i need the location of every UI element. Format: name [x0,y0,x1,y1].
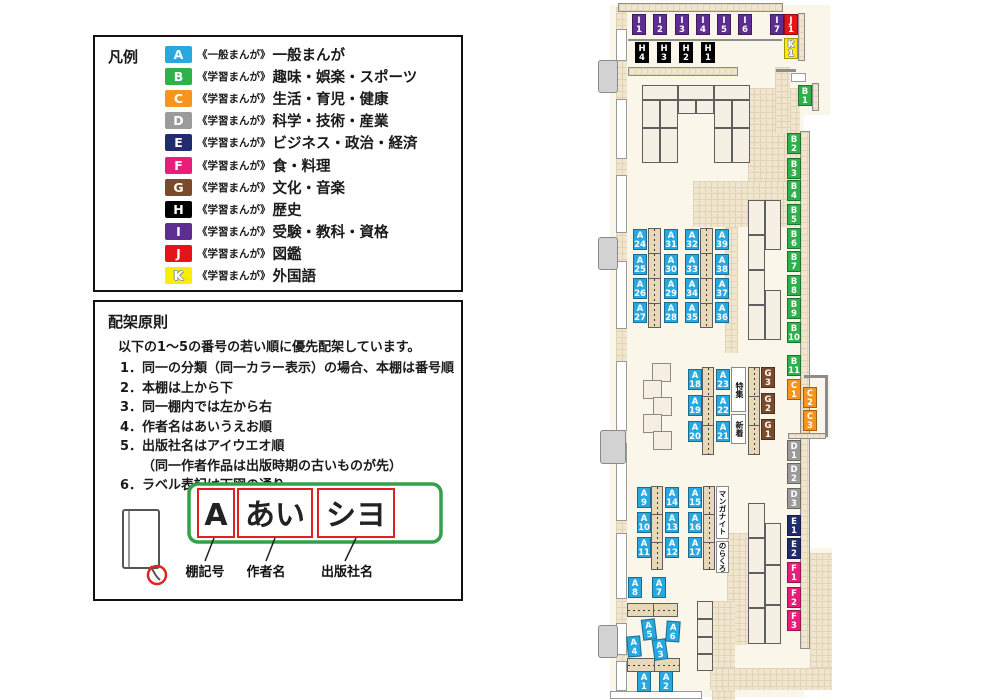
shelf-label-C1: C1 [787,379,801,400]
shelf-cell [697,601,713,619]
legend-title: 凡例 [108,46,138,67]
shelf-label-B11: B11 [787,355,801,376]
shelf-label-I4: I4 [696,14,710,35]
wall-segment [616,261,627,329]
floor-map: 特集 新着 マンガナイト のらくろ A1A2A3A4A5A6A7A8A9A10A… [598,3,834,700]
shelf-label-B8: B8 [787,275,801,296]
shelf-strip [651,486,663,570]
area-label-featured: 特集 [731,367,746,412]
shelf-label-A33: A33 [685,254,699,275]
shelf-strip [748,367,760,455]
legend-type: 《学習まんが》 [197,268,271,283]
shelf-strip [700,228,713,328]
legend-panel: 凡例 A《一般まんが》一般まんがB《学習まんが》趣味・娯楽・スポーツC《学習まん… [93,35,463,292]
shelf-label-A29: A29 [664,278,678,299]
shelf-label-A37: A37 [715,278,729,299]
principles-rules: 1．同一の分類（同一カラー表示）の場合、本棚は番号順2．本棚は上から下3．同一棚… [120,359,454,496]
shelf-label-I3: I3 [675,14,689,35]
wall-line [628,39,782,41]
shelf-label-D2: D2 [787,463,801,484]
shelf-label-C3: C3 [803,410,817,431]
shelf-cell [696,100,714,114]
shelf-label-A26: A26 [633,278,647,299]
shelf-label-A21: A21 [716,421,730,442]
legend-category: 外国語 [273,265,317,286]
shelf-label-A2: A2 [659,671,673,692]
legend-badge-F: F [165,157,192,174]
shelf-label-A31: A31 [664,229,678,250]
legend-type: 《学習まんが》 [197,91,271,106]
shelf-label-A17: A17 [688,537,702,558]
legend-type: 《一般まんが》 [197,47,271,62]
shelf-cell [678,100,696,114]
rule-4: 4．作者名はあいうえお順 [120,418,454,438]
shelf-label-A20: A20 [688,421,702,442]
shelf-cell [660,128,678,163]
principles-title: 配架原則 [108,311,168,332]
legend-category: ビジネス・政治・経済 [273,132,418,153]
legend-badge-E: E [165,134,192,151]
legend-item-C: C《学習まんが》生活・育児・健康 [165,87,418,109]
shelf-label-K1: K1 [784,38,798,59]
shelf-label-E1: E1 [787,515,801,536]
legend-item-H: H《学習まんが》歴史 [165,198,418,220]
shelf-label-A16: A16 [688,512,702,533]
shelf-label-I1: I1 [632,14,646,35]
reading-table [653,431,672,450]
shelf-label-B2: B2 [787,133,801,154]
area-label-manga-night: マンガナイト [716,486,729,539]
legend-type: 《学習まんが》 [197,69,271,84]
shelf-cell [748,200,765,235]
shelf-label-A4: A4 [626,635,642,657]
legend-type: 《学習まんが》 [197,135,271,150]
shelf-strip [627,603,678,617]
wall-shelf [788,433,826,439]
area-label-norakuro: のらくろ [716,541,729,573]
shelf-label-A7: A7 [652,577,666,598]
shelf-cell [748,305,765,340]
shelf-strip [648,228,661,328]
shelf-label-A15: A15 [688,487,702,508]
legend-item-B: B《学習まんが》趣味・娯楽・スポーツ [165,65,418,87]
principles-intro: 以下の1～5の番号の若い順に優先配架しています。 [118,336,420,355]
shelf-code-sample: A [204,498,228,533]
rule-5-note: （同一作者作品は出版時期の古いものが先） [120,457,454,477]
shelf-cell [748,538,765,573]
shelf-cell [660,100,678,128]
legend-badge-G: G [165,179,192,196]
shelf-label-D1: D1 [787,440,801,461]
shelf-label-B3: B3 [787,158,801,179]
wall-segment [616,361,627,431]
shelf-label-A36: A36 [715,302,729,323]
walkway [693,181,800,227]
shelf-cell [748,573,765,608]
legend-item-E: E《学習まんが》ビジネス・政治・経済 [165,132,418,154]
door [598,60,618,93]
shelf-cell [748,608,765,644]
shelf-label-A32: A32 [685,229,699,250]
shelf-label-A10: A10 [637,512,651,533]
shelf-label-G2: G2 [761,393,775,414]
legend-category: 食・料理 [273,155,331,176]
shelf-cell [697,637,713,654]
shelf-label-A18: A18 [688,369,702,390]
shelf-cell [765,200,781,250]
legend-type: 《学習まんが》 [197,158,271,173]
shelf-cell [697,654,713,671]
shelf-cell [748,503,765,538]
shelf-cell [765,290,781,340]
shelf-label-A19: A19 [688,395,702,416]
legend-category: 文化・音楽 [273,177,346,198]
caption-shelf-code: 棚記号 [185,564,224,580]
wall-line [825,375,828,437]
shelf-label-A28: A28 [664,302,678,323]
shelf-label-H3: H3 [657,42,671,63]
shelf-cell [765,523,781,565]
legend-type: 《学習まんが》 [197,113,271,128]
legend-type: 《学習まんが》 [197,246,271,261]
legend-badge-J: J [165,245,192,262]
wall-shelf [628,67,738,76]
shelf-label-A35: A35 [685,302,699,323]
shelf-label-A38: A38 [715,254,729,275]
shelf-cell [732,100,750,128]
wall-segment [616,533,627,599]
legend-category: 一般まんが [273,44,346,65]
shelf-label-A39: A39 [715,229,729,250]
book-icon [123,510,166,584]
wall-shelf [798,13,805,61]
shelf-cell [697,619,713,637]
shelf-label-I2: I2 [653,14,667,35]
wall-shelf [618,3,783,12]
shelf-label-B10: B10 [787,322,801,343]
door [600,430,626,464]
legend-category: 受験・教科・資格 [273,221,389,242]
shelf-label-A12: A12 [665,537,679,558]
legend-item-F: F《学習まんが》食・料理 [165,154,418,176]
shelf-label-J1: J1 [784,14,798,35]
legend-badge-I: I [165,223,192,240]
legend-badge-B: B [165,68,192,85]
shelf-label-G1: G1 [761,419,775,440]
shelf-label-F2: F2 [787,587,801,608]
shelf-label-A9: A9 [637,487,651,508]
caption-publisher: 出版社名 [321,564,373,580]
rule-2: 2．本棚は上から下 [120,379,454,399]
shelf-label-A13: A13 [665,512,679,533]
shelf-label-A1: A1 [637,671,651,692]
shelf-label-B5: B5 [787,204,801,225]
shelf-cell [642,85,678,100]
shelf-cell [732,128,750,163]
shelf-label-A14: A14 [665,487,679,508]
shelf-label-C2: C2 [803,387,817,408]
legend-category: 歴史 [273,199,302,220]
shelf-label-A30: A30 [664,254,678,275]
shelf-label-A6: A6 [665,621,680,643]
shelf-label-B1: B1 [798,85,812,106]
wall-segment [610,691,702,699]
area-label-new-arrivals: 新着 [731,414,746,444]
legend-category: 図鑑 [273,243,302,264]
caption-author: 作者名 [246,564,285,580]
door [598,625,618,658]
wall-shelf [812,83,819,111]
shelf-cell [642,100,660,128]
rule-3: 3．同一棚内では左から右 [120,398,454,418]
shelf-cell [714,100,732,128]
label-example-diagram: A あい シヨ 棚記号 作者名 出版社名 [101,480,453,598]
legend-type: 《学習まんが》 [197,180,271,195]
shelf-label-F3: F3 [787,610,801,631]
shelf-cell [765,605,781,644]
legend-item-A: A《一般まんが》一般まんが [165,43,418,65]
legend-item-D: D《学習まんが》科学・技術・産業 [165,110,418,132]
shelf-cell [678,85,714,100]
principles-panel: 配架原則 以下の1～5の番号の若い順に優先配架しています。 1．同一の分類（同一… [93,300,463,601]
shelf-label-A27: A27 [633,302,647,323]
shelf-label-I7: I7 [770,14,784,35]
shelf-cell [714,85,750,100]
shelf-label-A25: A25 [633,254,647,275]
shelf-strip [703,486,715,570]
shelf-label-H4: H4 [635,42,649,63]
shelf-label-A34: A34 [685,278,699,299]
shelf-cell [765,565,781,605]
legend-category: 科学・技術・産業 [273,110,389,131]
door [598,237,618,270]
wall-segment [616,99,627,159]
shelf-label-B6: B6 [787,228,801,249]
walkway [710,668,832,690]
shelf-label-I6: I6 [738,14,752,35]
legend-item-J: J《学習まんが》図鑑 [165,243,418,265]
legend-item-K: K《学習まんが》外国語 [165,265,418,287]
shelf-label-G3: G3 [761,367,775,388]
legend-item-G: G《学習まんが》文化・音楽 [165,176,418,198]
shelf-cell [748,270,765,305]
shelf-label-A11: A11 [637,537,651,558]
legend-type: 《学習まんが》 [197,224,271,239]
author-sample: あい [245,498,305,533]
legend-category: 生活・育児・健康 [273,88,389,109]
publisher-sample: シヨ [326,498,386,533]
wall-segment [616,175,627,233]
shelf-label-F1: F1 [787,562,801,583]
shelf-label-D3: D3 [787,488,801,509]
shelf-label-A23: A23 [716,369,730,390]
legend-category: 趣味・娯楽・スポーツ [273,66,418,87]
shelf-strip [702,367,714,455]
legend-badge-A: A [165,46,192,63]
legend-item-I: I《学習まんが》受験・教科・資格 [165,221,418,243]
shelf-label-B9: B9 [787,298,801,319]
wall-segment [791,73,806,82]
shelf-label-A8: A8 [628,577,642,598]
shelf-cell [642,128,660,163]
wall-segment [616,661,627,691]
rule-5: 5．出版社名はアイウエオ順 [120,437,454,457]
shelf-label-H1: H1 [701,42,715,63]
legend-badge-H: H [165,201,192,218]
shelf-label-H2: H2 [679,42,693,63]
legend-items: A《一般まんが》一般まんがB《学習まんが》趣味・娯楽・スポーツC《学習まんが》生… [165,43,418,287]
legend-badge-K: K [165,267,192,284]
rule-1: 1．同一の分類（同一カラー表示）の場合、本棚は番号順 [120,359,454,379]
legend-type: 《学習まんが》 [197,202,271,217]
walkway [810,553,832,668]
shelf-label-A24: A24 [633,229,647,250]
wall-segment [616,29,627,61]
shelf-label-E2: E2 [787,538,801,559]
shelf-label-B7: B7 [787,251,801,272]
shelf-label-B4: B4 [787,180,801,201]
shelf-cell [714,128,732,163]
legend-badge-D: D [165,112,192,129]
legend-badge-C: C [165,90,192,107]
shelf-label-A5: A5 [641,618,657,641]
wall-line [776,69,796,72]
shelf-cell [748,235,765,270]
shelf-label-A22: A22 [716,395,730,416]
walkway [775,67,790,133]
shelf-label-I5: I5 [717,14,731,35]
